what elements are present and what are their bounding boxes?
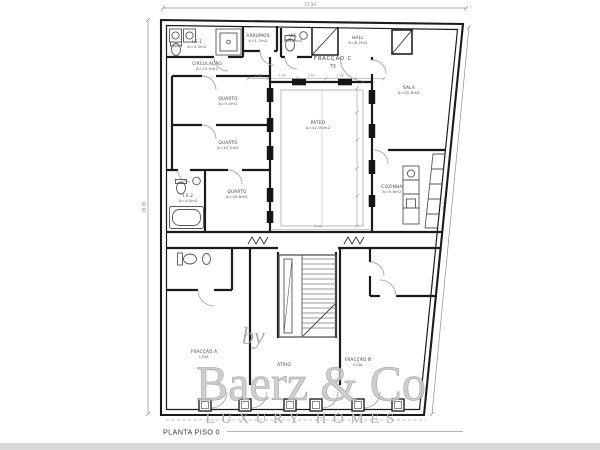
chain-dim-label: 1.80: [278, 74, 285, 78]
dim-top: 17.36: [304, 2, 316, 7]
bathtub-icon: [170, 207, 204, 229]
room-label: QUARTOA=9.0m2: [218, 96, 238, 106]
watermark-brand: Baerz & Co: [196, 355, 426, 411]
courtyard-patio: [281, 90, 363, 226]
toilet-icon: [171, 42, 182, 56]
wc-ground-fixtures: [178, 253, 211, 265]
dim-left: 18.81: [142, 201, 147, 213]
floor-plan-page: 17.36 18.81 20.06: [0, 0, 600, 450]
bottom-edge-bar: [0, 443, 600, 450]
toilet-icon: [178, 253, 197, 265]
chain-dim-label: 1.90: [307, 74, 314, 78]
unit-title: FRACÇÃO C: [314, 55, 352, 62]
toilet-icon: [176, 180, 187, 195]
room-label: SALAA=32.8m2: [398, 85, 420, 95]
room-label: QUARTOA=10.2m2: [217, 140, 239, 150]
unit-type: T3: [329, 64, 336, 70]
chain-dim-label: 1.90: [336, 74, 343, 78]
sink-icon: [193, 177, 201, 185]
watermark-tagline: LUXURY HOMES: [205, 411, 400, 427]
staircase: [279, 255, 336, 337]
room-label: PÁTEOA=42.00m2: [306, 119, 331, 130]
room-label: I.S.1A=4.3m2: [187, 39, 207, 49]
room-label: COZINHAA=9.8m2: [381, 184, 402, 194]
extra-dim-label: 4.80: [314, 225, 321, 229]
plan-title: PLANTA PISO 0: [163, 428, 220, 437]
sink-icon: [203, 254, 211, 265]
window-frames: [267, 79, 375, 223]
bathroom1-fixtures: [170, 29, 242, 56]
shower-icon: [216, 29, 241, 55]
room-label: ARRUMOSA=1.7m2: [246, 33, 269, 43]
room-label: QUARTOA=10.8m2: [226, 189, 248, 199]
floor-plan-canvas: 17.36 18.81 20.06: [0, 0, 600, 450]
room-label: CIRCULAÇÃOA=13.9m2: [192, 60, 222, 71]
watermark-by: by: [242, 324, 265, 350]
chain-dim-label: 1.06: [254, 74, 261, 78]
room-label: HALLA=8.2m2: [348, 35, 368, 45]
hatch-zigzag: [248, 237, 364, 244]
watermark: by Baerz & Co LUXURY HOMES: [196, 324, 426, 427]
room-label: I.S.2A=4.0m2: [178, 193, 198, 203]
